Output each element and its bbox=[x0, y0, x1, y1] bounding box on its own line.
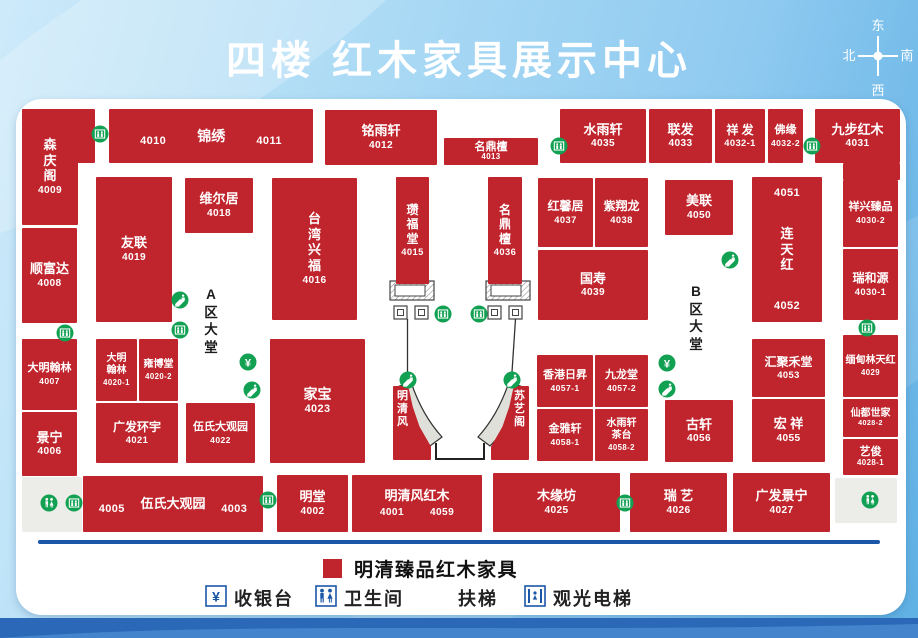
store-block-4036: 名 鼎 檀4036 bbox=[488, 177, 522, 284]
store-block-4033: 联发4033 bbox=[649, 109, 712, 163]
store-name: 金雅轩 bbox=[549, 423, 582, 436]
store-block-4006: 景宁4006 bbox=[22, 412, 77, 476]
store-name: 森 庆 阁 bbox=[43, 137, 56, 184]
store-block-4028-2: 仙都世家4028-2 bbox=[843, 399, 898, 437]
escalator-icon bbox=[504, 372, 521, 389]
legend-series: 明清臻品红木家具 bbox=[323, 555, 518, 582]
store-block-4008: 顺富达4008 bbox=[22, 228, 77, 323]
store-name: 连 天 红 bbox=[780, 226, 793, 273]
legend-red-swatch bbox=[323, 559, 342, 578]
elevator-icon bbox=[859, 320, 876, 337]
store-number: 4029 bbox=[861, 368, 880, 377]
store-name: 祥 发 bbox=[726, 123, 753, 137]
store-block-4035: 水雨轩4035 bbox=[560, 109, 646, 163]
store-name: 瑞和源 bbox=[852, 271, 888, 285]
zone-label: A 区 大 堂 bbox=[196, 286, 226, 356]
store-block-4001-4059: 明清风红木40014059 bbox=[352, 475, 482, 532]
store-name: 台 湾 兴 福 bbox=[308, 211, 321, 273]
store-number: 4012 bbox=[369, 140, 393, 152]
store-name: 佛缘 bbox=[775, 124, 797, 137]
legend-item-cashier: ¥收银台 bbox=[205, 586, 294, 610]
escalator-icon bbox=[722, 252, 739, 269]
store-block-4026: 瑞 艺4026 bbox=[630, 473, 727, 532]
elevator-icon bbox=[524, 585, 546, 612]
store-number: 4026 bbox=[666, 505, 690, 517]
elevator-icon bbox=[66, 495, 83, 512]
store-block-4020-1: 大明 翰林4020-1 bbox=[96, 339, 137, 401]
store-block-4031-wing bbox=[843, 163, 900, 180]
store-number: 4027 bbox=[769, 505, 793, 517]
escalator-icon bbox=[659, 381, 676, 398]
store-number: 4018 bbox=[207, 208, 231, 220]
store-number: 4032-2 bbox=[771, 138, 800, 148]
elevator-icon bbox=[435, 306, 452, 323]
store-number: 4009 bbox=[38, 185, 62, 197]
store-number: 4033 bbox=[668, 138, 692, 150]
store-number: 4037 bbox=[554, 215, 576, 226]
store-name: 铭雨轩 bbox=[361, 123, 400, 139]
store-number: 4032-1 bbox=[724, 138, 756, 149]
store-number: 4050 bbox=[687, 210, 711, 222]
store-number: 4057-2 bbox=[607, 383, 636, 393]
store-number: 4039 bbox=[581, 287, 605, 299]
floor-map: 四楼 红木家具展示中心 东 北 南 西 bbox=[0, 0, 918, 638]
store-name: 伍氏大观园 bbox=[193, 421, 248, 434]
store-block-4057-1: 香港日昇4057-1 bbox=[537, 355, 593, 407]
store-block-4012: 铭雨轩4012 bbox=[325, 110, 437, 165]
store-number: 4031 bbox=[845, 138, 869, 150]
store-block-4013: 名鼎檀4013 bbox=[444, 138, 538, 165]
store-name: 顺富达 bbox=[30, 261, 69, 277]
store-block-4009: 森 庆 阁4009 bbox=[22, 109, 78, 225]
elevator-icon bbox=[57, 325, 74, 342]
store-number: 4053 bbox=[777, 370, 799, 381]
store-number: 4022 bbox=[210, 435, 231, 445]
store-name: 瓒 福 堂 bbox=[406, 203, 418, 246]
store-number: 4020-2 bbox=[145, 372, 172, 381]
store-name: 宏 祥 bbox=[774, 416, 804, 432]
legend-item-label: 收银台 bbox=[234, 585, 294, 611]
store-block-4023: 家宝4023 bbox=[270, 339, 365, 463]
store-block-4051-4052: 4051连 天 红4052 bbox=[752, 177, 822, 322]
elevator-icon bbox=[92, 126, 109, 143]
compass-north: 北 bbox=[842, 48, 855, 63]
store-name: 伍氏大观园 bbox=[140, 496, 205, 512]
store-number: 4008 bbox=[37, 278, 61, 290]
store-number: 4058-2 bbox=[608, 443, 635, 452]
elevator-icon bbox=[804, 138, 821, 155]
store-number: 4056 bbox=[687, 433, 711, 445]
store-name: 雍博堂 bbox=[144, 359, 174, 371]
legend-item-escalator: undefined扶梯 bbox=[429, 586, 498, 610]
store-block-4055: 宏 祥4055 bbox=[752, 399, 825, 462]
store-number: 4019 bbox=[122, 252, 146, 264]
store-block-4020-2: 雍博堂4020-2 bbox=[139, 339, 178, 401]
store-name: 友联 bbox=[121, 235, 147, 251]
store-number: 4052 bbox=[774, 300, 800, 313]
svg-text:¥: ¥ bbox=[245, 357, 252, 369]
cashier-icon: ¥ bbox=[240, 354, 257, 371]
store-name: 艺俊 bbox=[860, 447, 882, 459]
store-block-4050: 美联4050 bbox=[665, 180, 733, 235]
store-number: 4016 bbox=[302, 275, 326, 287]
store-block-4058-1: 金雅轩4058-1 bbox=[537, 409, 593, 461]
store-number: 4021 bbox=[126, 435, 148, 446]
store-block-4010-4011: 4010锦绣4011 bbox=[109, 109, 313, 163]
store-name: 美联 bbox=[686, 193, 712, 209]
store-block-4057-2: 九龙堂4057-2 bbox=[595, 355, 648, 407]
store-name: 祥兴臻品 bbox=[849, 201, 893, 214]
store-block-4019: 友联4019 bbox=[96, 177, 172, 322]
store-block-4025: 木缘坊4025 bbox=[493, 473, 620, 532]
legend-divider-line bbox=[38, 540, 880, 544]
store-name: 瑞 艺 bbox=[664, 488, 694, 504]
store-block-4029: 缅甸林天红4029 bbox=[843, 335, 898, 397]
legend-series-label: 明清臻品红木家具 bbox=[354, 555, 518, 582]
elevator-icon bbox=[260, 492, 277, 509]
store-block-4016: 台 湾 兴 福4016 bbox=[272, 178, 357, 320]
store-number: 4028-2 bbox=[858, 419, 883, 427]
store-block-4015: 瓒 福 堂4015 bbox=[396, 177, 429, 284]
svg-text:¥: ¥ bbox=[664, 358, 671, 370]
store-name: 明清风红木 bbox=[384, 488, 449, 504]
elevator-icon bbox=[172, 322, 189, 339]
store-number: 4011 bbox=[256, 135, 281, 148]
store-name: 水雨轩 bbox=[583, 122, 622, 138]
store-block-4030-2: 祥兴臻品4030-2 bbox=[843, 180, 898, 247]
store-number: 4002 bbox=[300, 506, 324, 518]
store-number: 4025 bbox=[544, 505, 568, 517]
store-block-4021: 广发环宇4021 bbox=[96, 403, 178, 463]
escalator-icon bbox=[400, 372, 417, 389]
store-number: 4030-1 bbox=[855, 287, 887, 298]
restroom-icon bbox=[862, 492, 879, 509]
store-name: 维尔居 bbox=[199, 191, 238, 207]
store-number: 4058-1 bbox=[550, 437, 579, 447]
store-block-4028-1: 艺俊4028-1 bbox=[843, 439, 898, 475]
store-name: 苏 艺 阁 bbox=[514, 390, 525, 430]
store-number: 4038 bbox=[610, 215, 632, 226]
restroom-icon bbox=[41, 495, 58, 512]
store-number: 4013 bbox=[481, 153, 500, 161]
compass-west: 西 bbox=[871, 83, 884, 98]
legend-item-label: 观光电梯 bbox=[553, 585, 633, 611]
elevator-icon bbox=[551, 138, 568, 155]
store-block-4002: 明堂4002 bbox=[277, 475, 348, 532]
store-number: 4051 bbox=[774, 187, 800, 200]
store-name: 明 清 风 bbox=[397, 390, 408, 430]
store-number: 4028-1 bbox=[857, 459, 884, 467]
store-name: 景宁 bbox=[36, 430, 62, 446]
store-block-4038: 紫翔龙4038 bbox=[595, 178, 648, 247]
store-block-4030-1: 瑞和源4030-1 bbox=[843, 249, 898, 320]
store-block-4005-4003: 4005伍氏大观园4003 bbox=[83, 476, 263, 532]
store-number: 4023 bbox=[305, 403, 331, 416]
compass-east: 东 bbox=[871, 18, 884, 33]
compass-south: 南 bbox=[900, 48, 913, 63]
store-block-4039: 国寿4039 bbox=[538, 250, 648, 320]
legend-item-restroom: 卫生间 bbox=[315, 586, 404, 610]
store-number: 4020-1 bbox=[103, 378, 130, 387]
store-name: 国寿 bbox=[580, 271, 606, 287]
store-name: 红馨居 bbox=[547, 199, 583, 213]
restroom-icon bbox=[315, 585, 337, 612]
store-number: 4010 bbox=[140, 135, 166, 148]
store-name: 明堂 bbox=[299, 489, 325, 505]
legend-item-label: 扶梯 bbox=[458, 585, 498, 611]
store-number: 4005 bbox=[99, 503, 125, 516]
svg-text:¥: ¥ bbox=[212, 588, 220, 604]
store-block-4022: 伍氏大观园4022 bbox=[186, 403, 255, 463]
store-name: 九步红木 bbox=[831, 122, 883, 138]
store-name: 广发环宇 bbox=[113, 420, 161, 434]
zone-label: B 区 大 堂 bbox=[681, 283, 711, 353]
store-number: 4059 bbox=[430, 507, 454, 519]
store-number: 4036 bbox=[494, 247, 516, 258]
store-block-4031: 九步红木4031 bbox=[815, 109, 900, 163]
store-block-4007: 大明翰林4007 bbox=[22, 339, 77, 410]
store-block-4018: 维尔居4018 bbox=[185, 178, 253, 233]
store-block-4053: 汇聚禾堂4053 bbox=[752, 339, 825, 397]
escalator-icon bbox=[172, 292, 189, 309]
store-name: 锦绣 bbox=[197, 128, 225, 145]
store-name: 九龙堂 bbox=[605, 369, 638, 382]
store-name: 广发景宁 bbox=[755, 488, 807, 504]
store-name: 汇聚禾堂 bbox=[764, 355, 812, 369]
cashier-icon: ¥ bbox=[205, 585, 227, 612]
store-name: 木缘坊 bbox=[537, 488, 576, 504]
page-title: 四楼 红木家具展示中心 bbox=[0, 28, 918, 86]
elevator-icon bbox=[471, 306, 488, 323]
store-name: 大明 翰林 bbox=[107, 353, 127, 377]
store-number: 4015 bbox=[401, 247, 423, 258]
store-block-4037: 红馨居4037 bbox=[538, 178, 593, 247]
store-name: 缅甸林天红 bbox=[846, 355, 896, 367]
store-number: 4030-2 bbox=[856, 215, 885, 225]
store-number-row: 40014059 bbox=[380, 506, 454, 519]
store-number: 4057-1 bbox=[550, 383, 579, 393]
store-block-4032-2: 佛缘4032-2 bbox=[768, 109, 803, 163]
footer-band bbox=[0, 618, 918, 638]
store-number: 4001 bbox=[380, 507, 404, 519]
store-number: 4055 bbox=[776, 433, 800, 445]
store-name: 古轩 bbox=[686, 417, 712, 433]
store-block-4027: 广发景宁4027 bbox=[733, 473, 830, 532]
store-block-4056: 古轩4056 bbox=[665, 400, 733, 462]
store-name: 联发 bbox=[667, 122, 693, 138]
elevator-icon bbox=[617, 495, 634, 512]
store-number: 4006 bbox=[37, 446, 61, 458]
cashier-icon: ¥ bbox=[659, 355, 676, 372]
escalator-icon bbox=[244, 382, 261, 399]
store-name: 家宝 bbox=[304, 386, 332, 403]
legend-item-elevator: 观光电梯 bbox=[524, 586, 633, 610]
legend-item-label: 卫生间 bbox=[344, 585, 404, 611]
store-name: 香港日昇 bbox=[543, 369, 587, 382]
store-number: 4007 bbox=[39, 376, 60, 386]
store-number: 4035 bbox=[591, 138, 615, 150]
store-block-4058-2: 水雨轩 茶台4058-2 bbox=[595, 409, 648, 461]
store-number: 4003 bbox=[221, 503, 247, 516]
store-name: 名 鼎 檀 bbox=[499, 203, 511, 246]
store-name: 水雨轩 茶台 bbox=[607, 418, 637, 442]
store-block-4032-1: 祥 发4032-1 bbox=[715, 109, 765, 163]
store-name: 大明翰林 bbox=[28, 362, 72, 375]
store-name: 紫翔龙 bbox=[603, 199, 639, 213]
compass-icon: 东 北 南 西 bbox=[838, 14, 918, 102]
escalator-icon: undefined bbox=[429, 585, 451, 612]
